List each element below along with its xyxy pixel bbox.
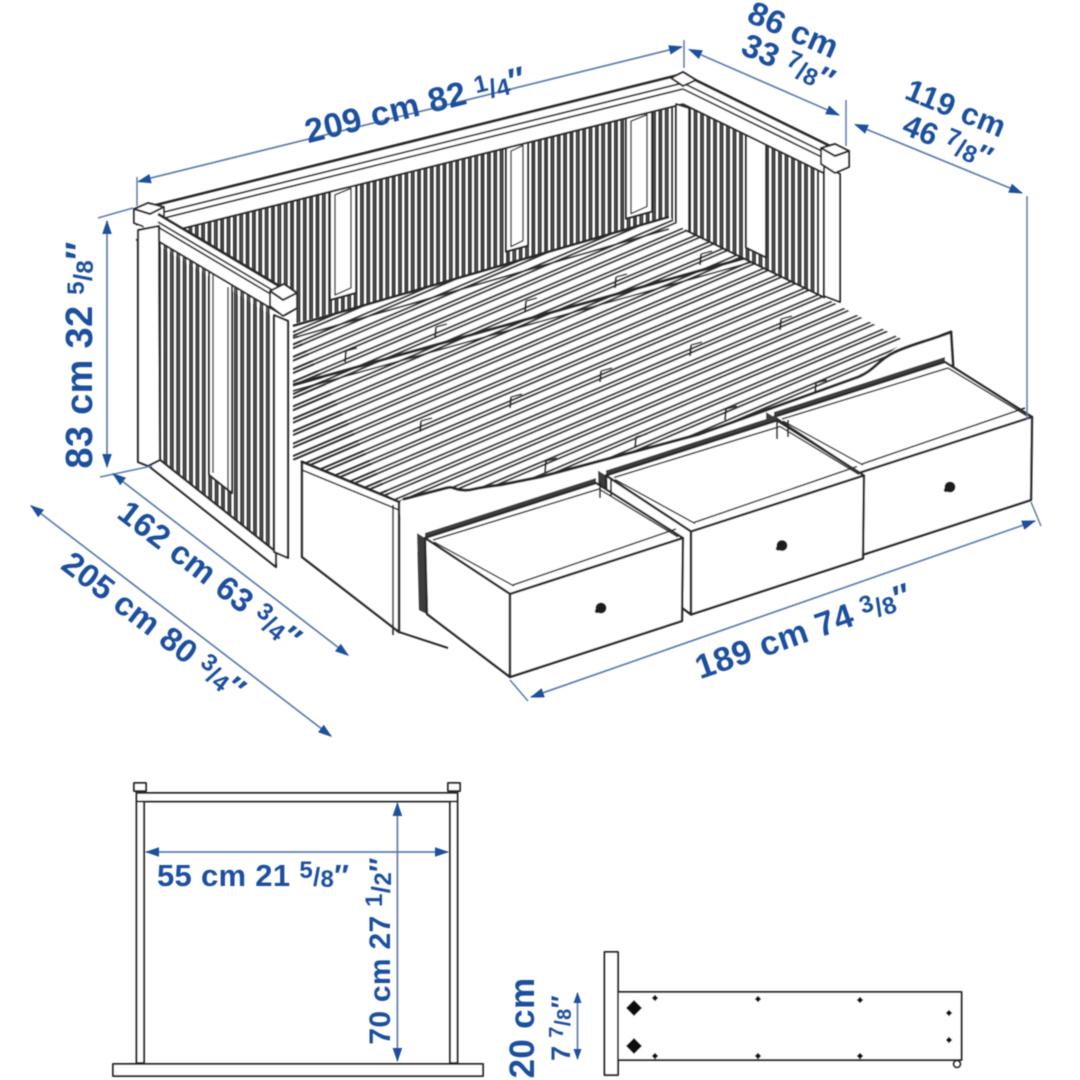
svg-text:55 cm 21 5/8″: 55 cm 21 5/8″ [157,857,349,893]
svg-text:20 cm: 20 cm [503,978,542,1079]
